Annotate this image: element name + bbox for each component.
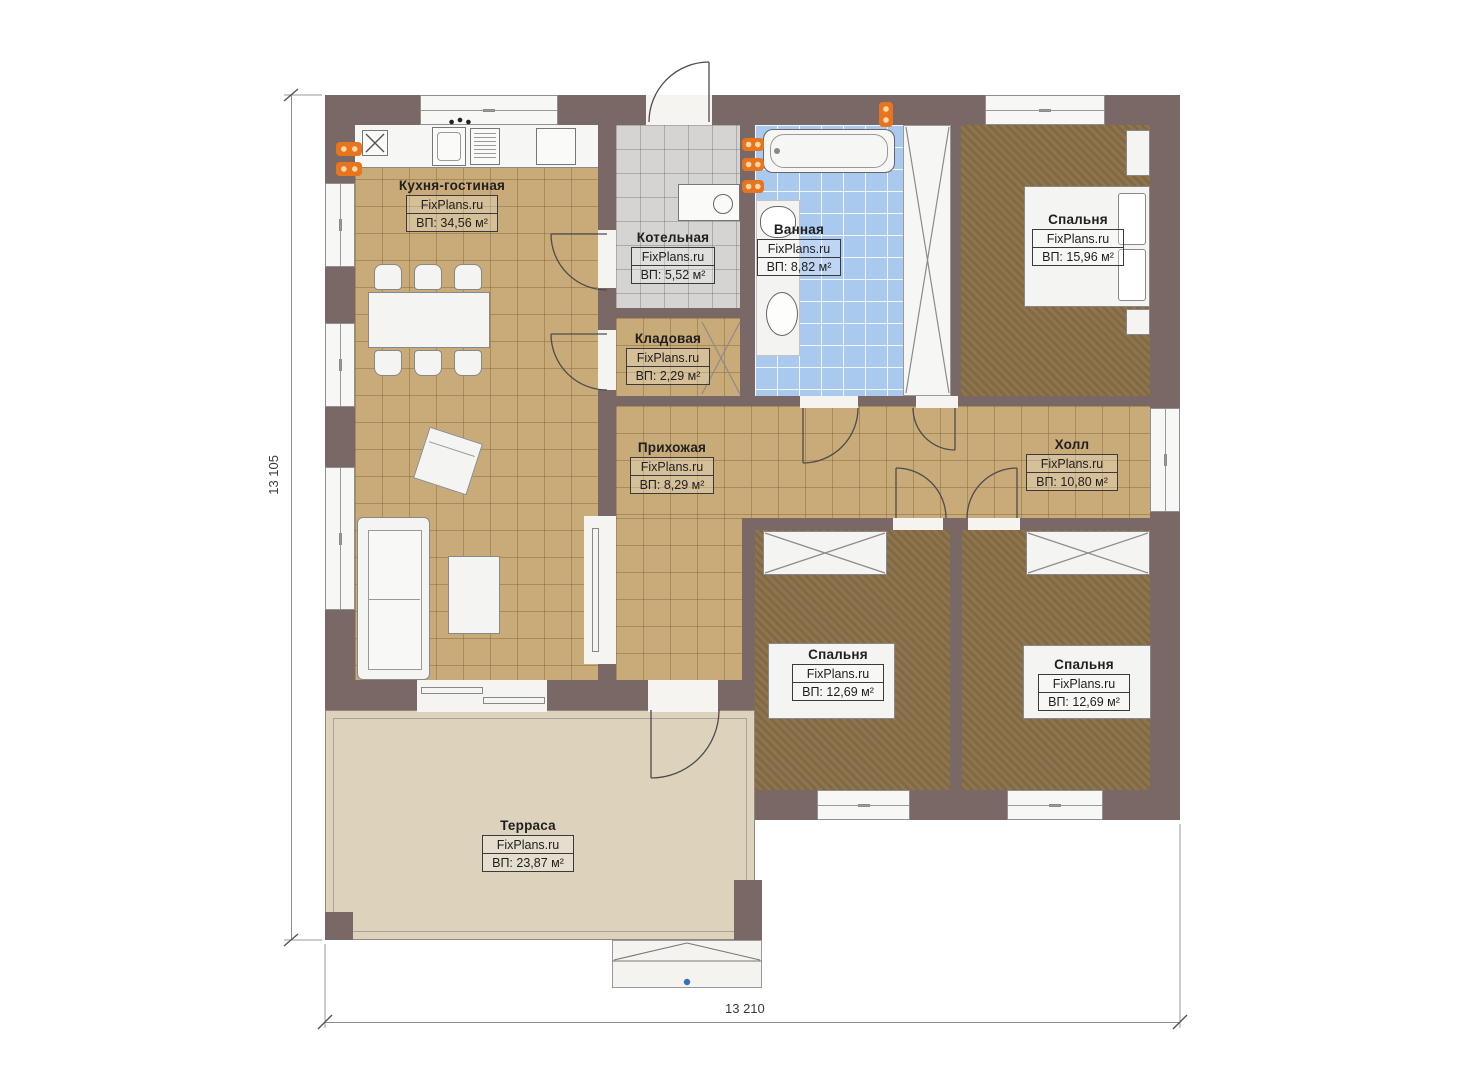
faucet-icon [448, 116, 472, 126]
dresser-icon [1126, 130, 1150, 176]
brand-watermark: FixPlans.ru [758, 240, 841, 258]
room-area: ВП: 15,96 м² [1033, 248, 1123, 265]
room-label-boiler: Котельная FixPlans.ru ВП: 5,52 м² [613, 230, 733, 284]
room-name: Терраса [468, 818, 588, 833]
room-label-hall: Холл FixPlans.ru ВП: 10,80 м² [1012, 437, 1132, 491]
sink-basin [437, 132, 461, 161]
door-opening-bedroom-top-right [916, 396, 958, 408]
brand-watermark: FixPlans.ru [793, 665, 883, 683]
room-name: Кухня-гостиная [392, 178, 512, 193]
room-name: Прихожая [612, 440, 732, 455]
room-label-kitchen-living: Кухня-гостиная FixPlans.ru ВП: 34,56 м² [392, 178, 512, 232]
window-left-3 [325, 467, 355, 610]
room-name: Спальня [1024, 657, 1144, 672]
room-name: Котельная [613, 230, 733, 245]
chair-icon [414, 350, 442, 376]
door-opening-bathroom [800, 396, 858, 408]
sliding-partition-opening [584, 516, 616, 664]
room-area: ВП: 23,87 м² [483, 854, 573, 871]
sliding-door-leaf-1 [421, 687, 483, 694]
dimension-label-vertical: 13 105 [266, 455, 281, 495]
coffee-table-icon [448, 556, 500, 634]
brand-watermark: FixPlans.ru [631, 458, 714, 476]
room-name: Кладовая [608, 331, 728, 346]
entrance-door-opening [646, 95, 712, 125]
brand-watermark: FixPlans.ru [1033, 230, 1123, 248]
chair-icon [374, 350, 402, 376]
window-hall-right [1150, 408, 1180, 512]
brand-watermark: FixPlans.ru [627, 349, 710, 367]
room-floor-entry-hall [616, 518, 742, 680]
room-name: Ванная [739, 222, 859, 237]
terrace-post-left [325, 912, 353, 940]
radiator-icon [336, 162, 362, 176]
wardrobe-icon [763, 531, 887, 575]
window-left-2 [325, 323, 355, 407]
sofa-icon [357, 517, 430, 680]
nightstand-icon [1126, 309, 1150, 335]
room-label-bedroom-bottom-right: Спальня FixPlans.ru ВП: 12,69 м² [1024, 657, 1144, 711]
sliding-door-icon [592, 528, 599, 652]
sliding-door-leaf-2 [483, 697, 545, 704]
room-label-terrace: Терраса FixPlans.ru ВП: 23,87 м² [468, 818, 588, 872]
room-area: ВП: 5,52 м² [632, 266, 715, 283]
room-area: ВП: 8,82 м² [758, 258, 841, 275]
radiator-icon [742, 138, 764, 151]
closet-shaft-icon [903, 125, 951, 396]
room-label-bedroom-bottom-middle: Спальня FixPlans.ru ВП: 12,69 м² [778, 647, 898, 701]
dimension-line-horizontal [325, 1022, 1180, 1023]
room-area: ВП: 12,69 м² [1039, 693, 1129, 710]
room-label-bedroom-top-right: Спальня FixPlans.ru ВП: 15,96 м² [1018, 212, 1138, 266]
chair-icon [374, 264, 402, 290]
vent-icon [362, 130, 388, 156]
chair-icon [454, 350, 482, 376]
room-label-bathroom: Ванная FixPlans.ru ВП: 8,82 м² [739, 222, 859, 276]
door-opening-bedroom-middle [893, 518, 943, 530]
brand-watermark: FixPlans.ru [483, 836, 573, 854]
room-name: Спальня [778, 647, 898, 662]
room-area: ВП: 8,29 м² [631, 476, 714, 493]
wardrobe-icon [1026, 531, 1150, 575]
chair-icon [454, 264, 482, 290]
brand-watermark: FixPlans.ru [1039, 675, 1129, 693]
room-area: ВП: 10,80 м² [1027, 473, 1117, 490]
bathtub-icon [763, 129, 895, 173]
chair-icon [414, 264, 442, 290]
entry-stairs-icon [612, 940, 762, 988]
radiator-icon [742, 158, 764, 171]
room-label-entry-hall: Прихожая FixPlans.ru ВП: 8,29 м² [612, 440, 732, 494]
door-opening-bedroom-right [968, 518, 1020, 530]
door-opening-terrace [648, 680, 718, 712]
window-bedroom-right-bottom [1007, 790, 1103, 820]
boiler-unit-icon [678, 184, 740, 221]
window-kitchen-top [420, 95, 558, 125]
room-area: ВП: 2,29 м² [627, 367, 710, 384]
radiator-icon [879, 102, 893, 127]
window-left-1 [325, 183, 355, 267]
window-bedroom-top-right [985, 95, 1105, 125]
room-label-pantry: Кладовая FixPlans.ru ВП: 2,29 м² [608, 331, 728, 385]
terrace-post-right [734, 880, 762, 940]
brand-watermark: FixPlans.ru [407, 196, 497, 214]
radiator-icon [336, 142, 362, 156]
room-name: Спальня [1018, 212, 1138, 227]
room-area: ВП: 34,56 м² [407, 214, 497, 231]
floor-plan-canvas: 13 105 13 210 [0, 0, 1474, 1080]
dimension-label-horizontal: 13 210 [725, 1001, 765, 1016]
room-area: ВП: 12,69 м² [793, 683, 883, 700]
toilet-icon [766, 292, 798, 336]
dimension-line-vertical [291, 95, 292, 940]
brand-watermark: FixPlans.ru [632, 248, 715, 266]
radiator-icon [742, 180, 764, 193]
sliding-door-terrace [417, 680, 547, 712]
dining-table-icon [368, 292, 490, 348]
window-bedroom-middle-bottom [817, 790, 910, 820]
stove-icon [536, 128, 576, 165]
brand-watermark: FixPlans.ru [1027, 455, 1117, 473]
dishwasher-icon [470, 128, 500, 165]
room-name: Холл [1012, 437, 1132, 452]
